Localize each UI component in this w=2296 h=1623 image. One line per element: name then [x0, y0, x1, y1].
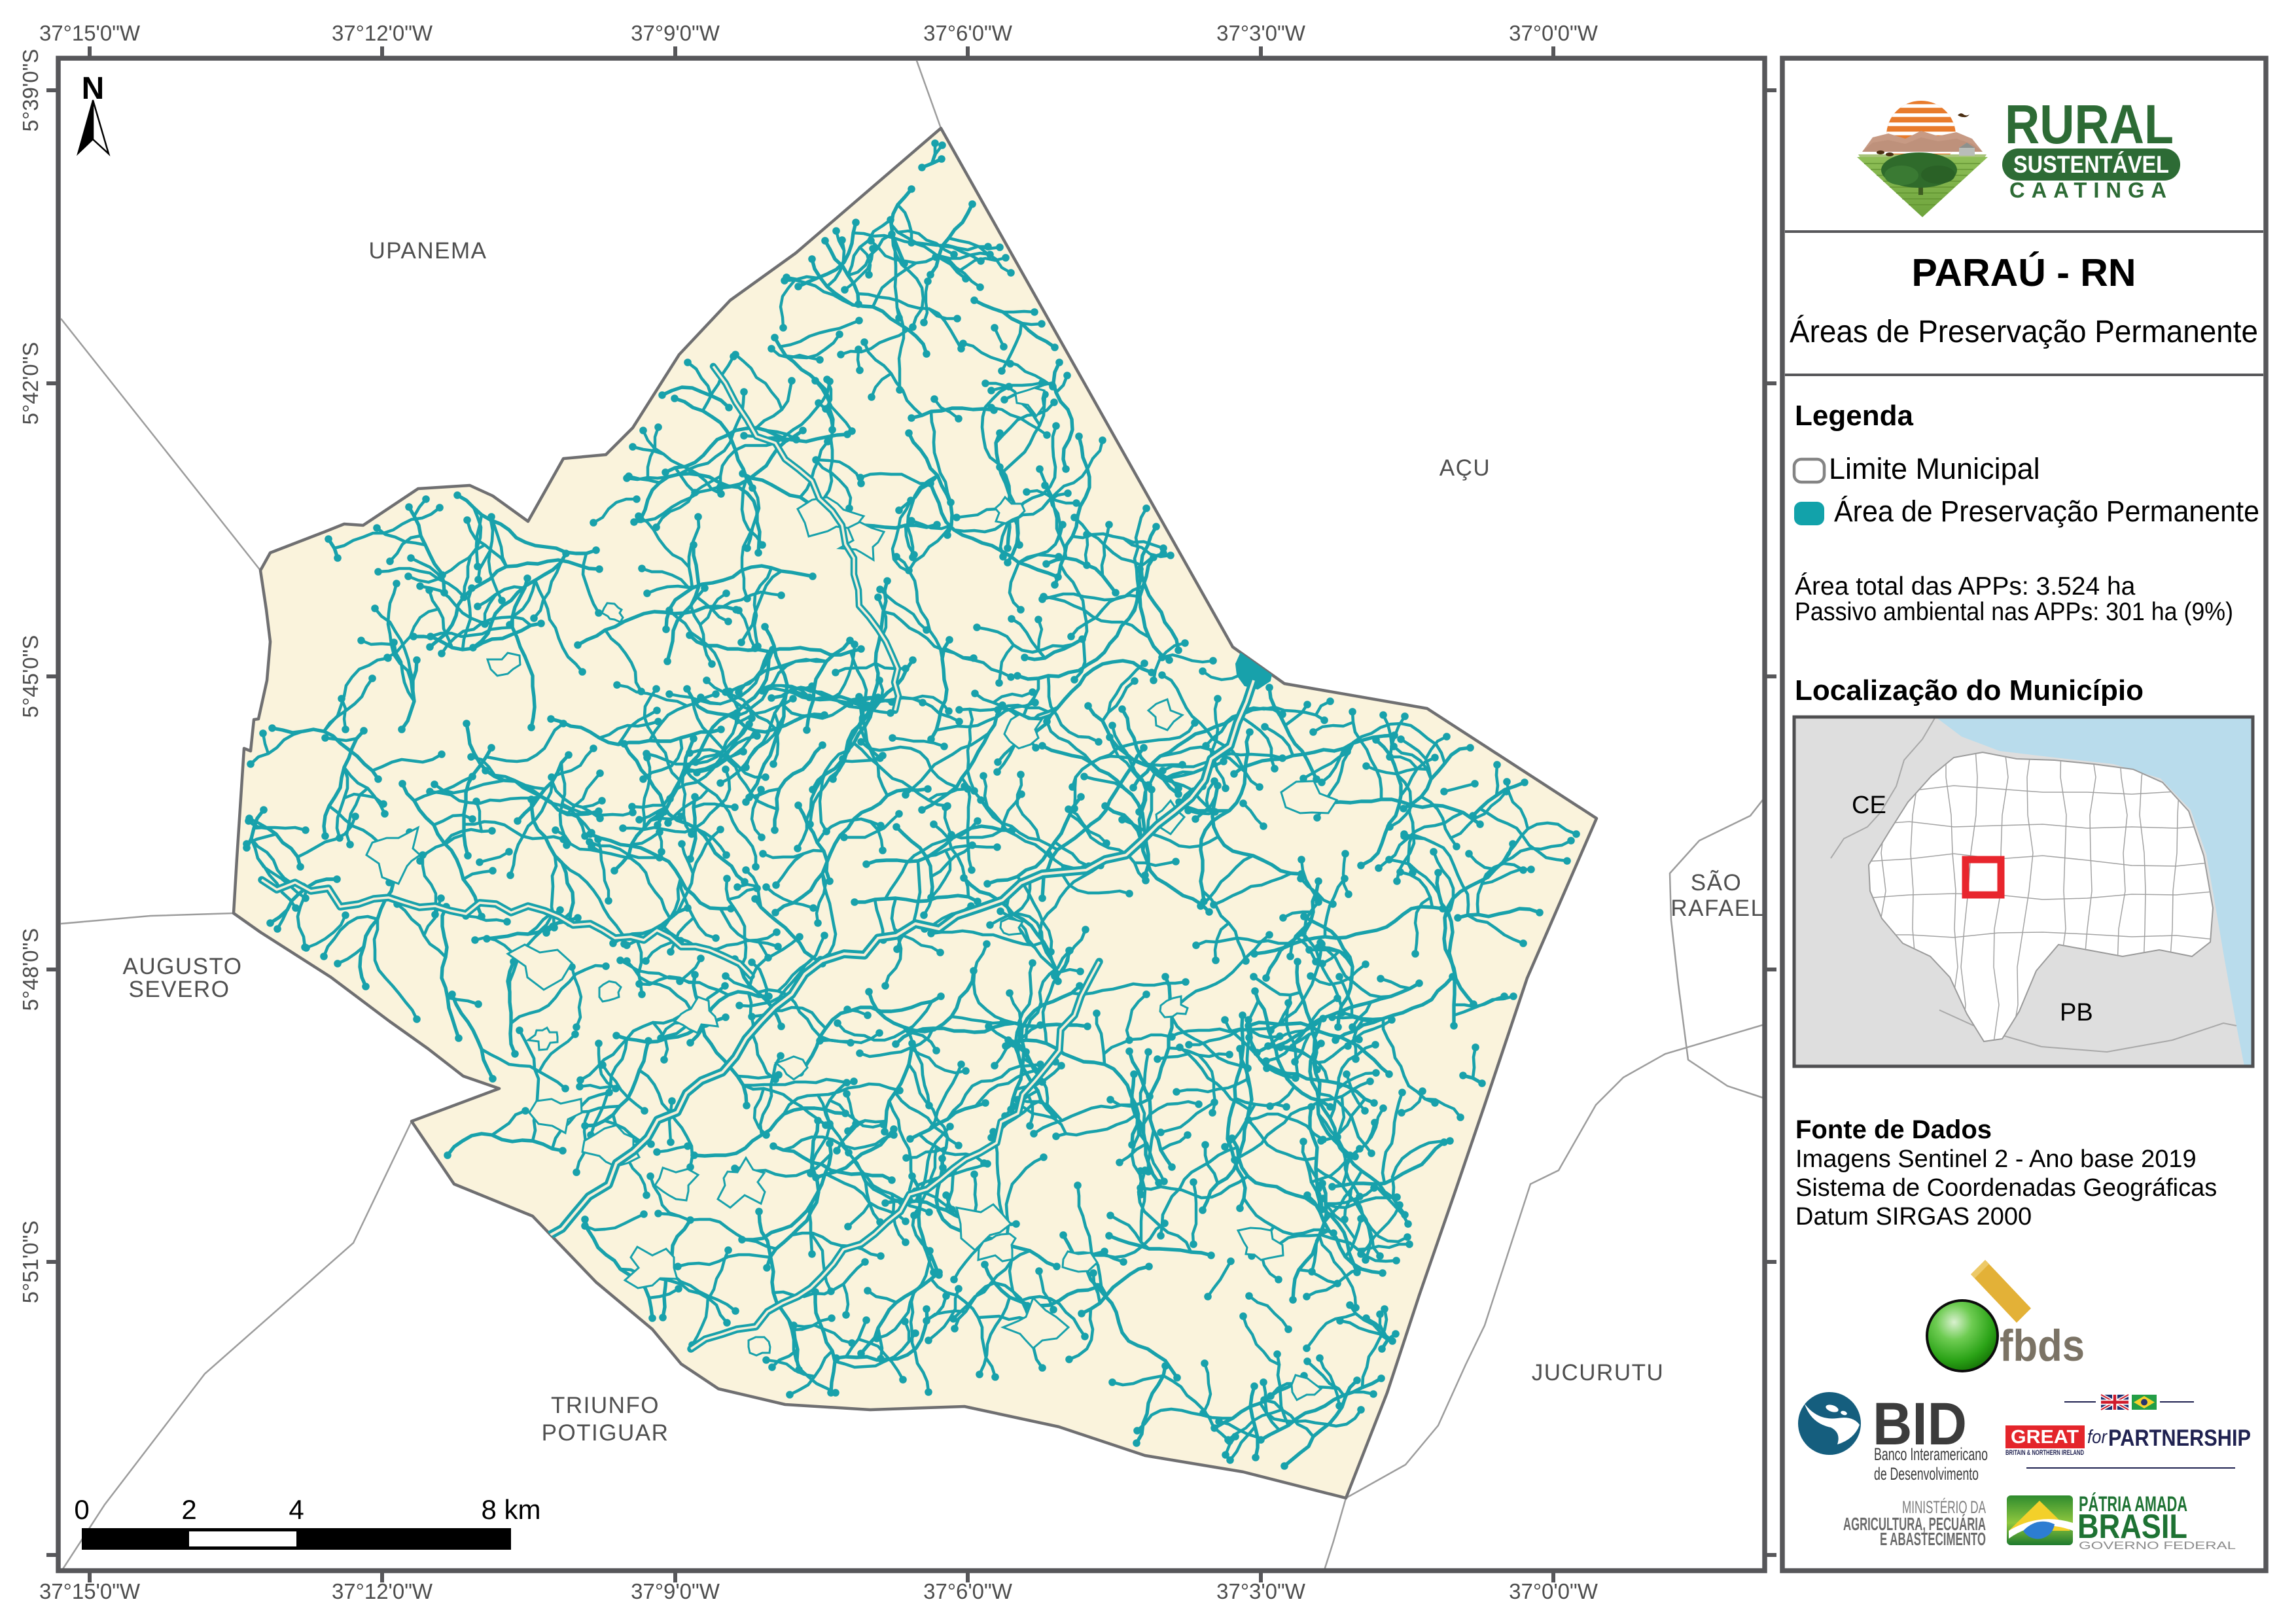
- svg-text:AÇU: AÇU: [1439, 455, 1491, 481]
- svg-text:Localização do Município: Localização do Município: [1795, 674, 2144, 707]
- svg-text:PB: PB: [2060, 999, 2093, 1026]
- svg-text:POTIGUAR: POTIGUAR: [542, 1420, 669, 1446]
- svg-text:PARTNERSHIP: PARTNERSHIP: [2108, 1425, 2251, 1451]
- svg-text:37°6'0"W: 37°6'0"W: [923, 21, 1013, 45]
- svg-text:Áreas de Preservação Permanent: Áreas de Preservação Permanente: [1790, 315, 2258, 349]
- svg-text:0: 0: [74, 1494, 89, 1525]
- svg-text:SUSTENTÁVEL: SUSTENTÁVEL: [2013, 151, 2169, 178]
- svg-text:37°12'0"W: 37°12'0"W: [332, 21, 433, 45]
- svg-text:2: 2: [181, 1494, 196, 1525]
- svg-text:37°12'0"W: 37°12'0"W: [332, 1579, 433, 1603]
- svg-text:5°51'0"S: 5°51'0"S: [18, 1221, 43, 1304]
- svg-text:SÃO: SÃO: [1691, 870, 1742, 896]
- svg-text:37°3'0"W: 37°3'0"W: [1216, 21, 1306, 45]
- svg-text:UPANEMA: UPANEMA: [369, 238, 487, 264]
- svg-text:SEVERO: SEVERO: [129, 977, 230, 1002]
- svg-text:de Desenvolvimento: de Desenvolvimento: [1874, 1464, 1979, 1484]
- svg-text:Passivo ambiental nas APPs: 30: Passivo ambiental nas APPs: 301 ha (9%): [1795, 598, 2233, 626]
- svg-text:5°45'0"S: 5°45'0"S: [18, 635, 43, 718]
- svg-text:RURAL: RURAL: [2005, 94, 2174, 155]
- svg-text:for: for: [2087, 1427, 2108, 1448]
- svg-text:Sistema de Coordenadas Geográf: Sistema de Coordenadas Geográficas: [1795, 1174, 2217, 1202]
- svg-text:4: 4: [289, 1494, 304, 1525]
- svg-text:AUGUSTO: AUGUSTO: [123, 954, 243, 979]
- svg-text:Imagens Sentinel 2 - Ano base: Imagens Sentinel 2 - Ano base 2019: [1795, 1145, 2197, 1173]
- svg-text:RAFAEL: RAFAEL: [1670, 896, 1764, 921]
- svg-text:BRITAIN & NORTHERN IRELAND: BRITAIN & NORTHERN IRELAND: [2005, 1449, 2084, 1457]
- svg-text:37°6'0"W: 37°6'0"W: [923, 1579, 1013, 1603]
- svg-text:Área de Preservação Permanente: Área de Preservação Permanente: [1834, 495, 2259, 528]
- svg-text:Fonte de Dados: Fonte de Dados: [1795, 1115, 1992, 1144]
- svg-text:37°0'0"W: 37°0'0"W: [1509, 21, 1598, 45]
- svg-text:37°0'0"W: 37°0'0"W: [1509, 1579, 1598, 1603]
- svg-text:8 km: 8 km: [481, 1494, 540, 1525]
- svg-text:37°15'0"W: 37°15'0"W: [39, 1579, 141, 1603]
- svg-text:Banco Interamericano: Banco Interamericano: [1874, 1444, 1988, 1464]
- svg-text:E ABASTECIMENTO: E ABASTECIMENTO: [1880, 1529, 1986, 1549]
- svg-text:5°42'0"S: 5°42'0"S: [18, 342, 43, 425]
- svg-text:CE: CE: [1852, 792, 1886, 819]
- svg-text:Limite Municipal: Limite Municipal: [1829, 452, 2040, 485]
- svg-text:37°9'0"W: 37°9'0"W: [631, 21, 720, 45]
- svg-text:Datum SIRGAS 2000: Datum SIRGAS 2000: [1795, 1203, 2032, 1230]
- svg-text:5°39'0"S: 5°39'0"S: [18, 49, 43, 132]
- svg-text:Área total das APPs: 3.524 ha: Área total das APPs: 3.524 ha: [1795, 572, 2136, 601]
- svg-text:TRIUNFO: TRIUNFO: [551, 1393, 660, 1418]
- svg-text:37°15'0"W: 37°15'0"W: [39, 21, 141, 45]
- svg-text:Legenda: Legenda: [1795, 400, 1913, 432]
- svg-text:GOVERNO FEDERAL: GOVERNO FEDERAL: [2079, 1539, 2236, 1552]
- svg-text:JUCURUTU: JUCURUTU: [1532, 1360, 1665, 1386]
- svg-text:5°48'0"S: 5°48'0"S: [18, 928, 43, 1011]
- svg-text:CAATINGA: CAATINGA: [2009, 178, 2173, 202]
- svg-text:37°3'0"W: 37°3'0"W: [1216, 1579, 1306, 1603]
- svg-text:PARAÚ - RN: PARAÚ - RN: [1911, 251, 2136, 294]
- svg-text:fbds: fbds: [2000, 1321, 2085, 1370]
- svg-text:GREAT: GREAT: [2011, 1427, 2079, 1448]
- svg-text:37°9'0"W: 37°9'0"W: [631, 1579, 720, 1603]
